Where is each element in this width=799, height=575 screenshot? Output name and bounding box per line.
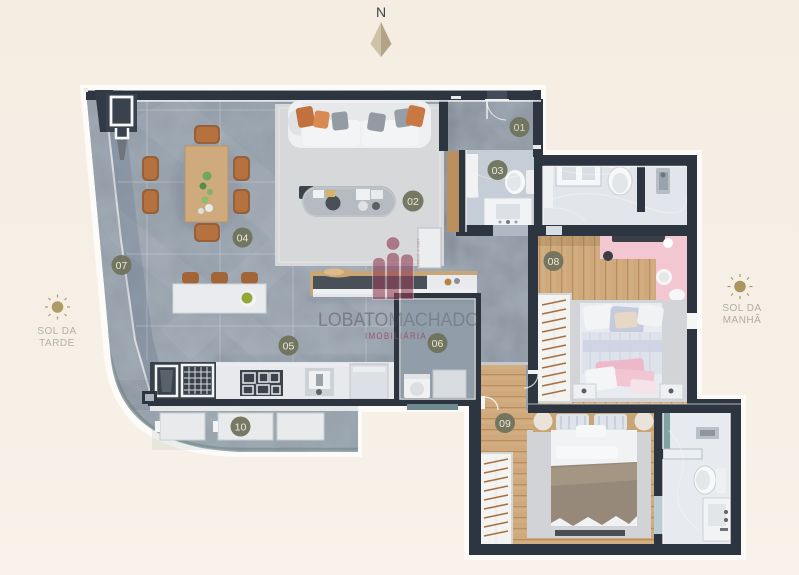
svg-text:01: 01: [514, 122, 526, 134]
svg-text:TARDE: TARDE: [39, 338, 75, 349]
svg-text:09: 09: [499, 418, 511, 430]
svg-text:SOL DA: SOL DA: [37, 326, 76, 337]
svg-text:10: 10: [235, 421, 247, 433]
svg-text:07: 07: [116, 260, 128, 272]
svg-text:04: 04: [237, 232, 249, 244]
svg-text:05: 05: [283, 340, 295, 352]
svg-text:LOBATOMACHADO: LOBATOMACHADO: [318, 309, 479, 331]
svg-text:03: 03: [492, 165, 504, 177]
svg-text:IMOBILIÁRIA: IMOBILIÁRIA: [365, 331, 427, 341]
svg-text:N: N: [376, 4, 386, 20]
svg-text:08: 08: [548, 256, 560, 268]
svg-text:MANHÃ: MANHÃ: [723, 313, 762, 326]
svg-text:SOL DA: SOL DA: [722, 303, 761, 314]
svg-text:CRECI J-5087: CRECI J-5087: [417, 238, 421, 267]
svg-text:02: 02: [407, 196, 419, 208]
svg-text:06: 06: [432, 338, 444, 350]
